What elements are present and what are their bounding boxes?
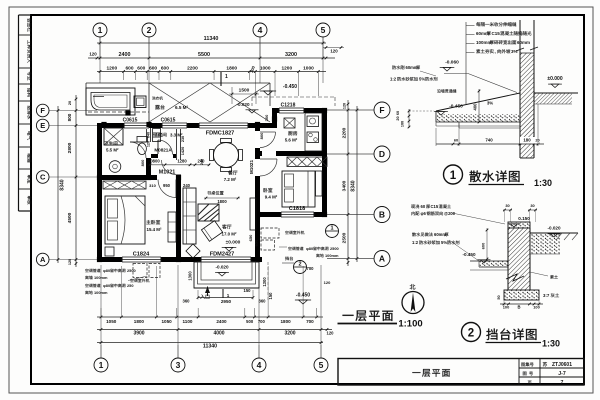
svg-text:1420: 1420 <box>181 147 185 155</box>
svg-text:C0615: C0615 <box>123 118 138 124</box>
svg-text:250: 250 <box>127 283 134 288</box>
svg-text:5500: 5500 <box>198 52 210 58</box>
svg-text:15.4 M²: 15.4 M² <box>147 227 162 232</box>
svg-text:1500: 1500 <box>239 88 250 94</box>
svg-text:1:2: 1:2 <box>390 77 397 82</box>
svg-text:4: 4 <box>258 25 263 35</box>
svg-text:F: F <box>379 105 384 115</box>
svg-text:600: 600 <box>161 66 169 72</box>
svg-text:600: 600 <box>481 243 486 250</box>
svg-text:9.4 M²: 9.4 M² <box>265 195 278 200</box>
svg-text:1280: 1280 <box>177 159 187 164</box>
svg-text:C15: C15 <box>492 31 501 36</box>
svg-text:1: 1 <box>330 226 333 232</box>
svg-text:950: 950 <box>163 183 171 188</box>
svg-text:M0821A: M0821A <box>154 148 172 153</box>
svg-text:230: 230 <box>181 136 185 142</box>
svg-text:3: 3 <box>176 360 181 370</box>
svg-text:20: 20 <box>396 116 400 120</box>
svg-text:120: 120 <box>327 331 335 336</box>
svg-text:5%: 5% <box>419 77 425 82</box>
svg-text:-0.020: -0.020 <box>236 102 249 107</box>
svg-text:FDMC1827: FDMC1827 <box>206 131 235 137</box>
svg-text:3%: 3% <box>487 101 493 106</box>
svg-text:±0.000: ±0.000 <box>226 240 241 246</box>
svg-text:1: 1 <box>99 360 104 370</box>
svg-text:5: 5 <box>319 360 324 370</box>
svg-text:7.2 M²: 7.2 M² <box>224 177 237 182</box>
svg-text:C: C <box>40 173 46 182</box>
svg-text:1100: 1100 <box>182 319 192 324</box>
svg-text:-0.060: -0.060 <box>445 60 459 66</box>
svg-text:3900: 3900 <box>133 331 144 337</box>
svg-text:120: 120 <box>343 103 347 109</box>
svg-text:150: 150 <box>268 292 273 300</box>
svg-text:5.6 M²: 5.6 M² <box>285 138 298 143</box>
svg-text:120: 120 <box>68 259 72 265</box>
svg-text:1:2: 1:2 <box>412 240 419 245</box>
svg-text:11340: 11340 <box>204 36 219 42</box>
svg-text:J-7: J-7 <box>558 371 566 377</box>
svg-text:800: 800 <box>259 132 264 139</box>
svg-text:4000: 4000 <box>213 331 224 337</box>
svg-text:B: B <box>517 305 520 310</box>
svg-text:1800: 1800 <box>134 319 145 324</box>
svg-text:700: 700 <box>306 319 314 324</box>
svg-text:1:30: 1:30 <box>542 339 560 349</box>
svg-text:30: 30 <box>505 203 509 208</box>
svg-text:20: 20 <box>535 138 539 143</box>
svg-text:1: 1 <box>98 25 103 35</box>
svg-text:1200: 1200 <box>281 66 292 72</box>
svg-text:-0.020: -0.020 <box>547 226 560 231</box>
svg-text:F: F <box>40 106 45 115</box>
svg-text:ZTJ0601: ZTJ0601 <box>552 362 572 368</box>
svg-text:8340: 8340 <box>60 179 66 190</box>
svg-text:100mm: 100mm <box>476 40 492 45</box>
svg-text:2800: 2800 <box>67 142 73 153</box>
svg-text:7: 7 <box>561 380 564 386</box>
svg-text:2400: 2400 <box>119 52 131 58</box>
svg-text:1: 1 <box>227 293 230 298</box>
svg-text:120: 120 <box>146 141 150 147</box>
svg-text:FDM2427: FDM2427 <box>210 252 235 258</box>
svg-text:0800: 0800 <box>150 159 160 164</box>
svg-text:310: 310 <box>149 183 156 188</box>
svg-text:600: 600 <box>125 66 133 72</box>
svg-text:3:7: 3:7 <box>543 293 550 298</box>
svg-text:φ80: φ80 <box>306 246 313 251</box>
svg-text:150: 150 <box>244 288 252 293</box>
svg-text:240: 240 <box>198 159 206 164</box>
svg-text:1800: 1800 <box>226 66 237 72</box>
svg-text:180: 180 <box>523 138 531 143</box>
svg-text:650: 650 <box>248 234 253 241</box>
svg-text:120: 120 <box>330 49 338 54</box>
svg-text:20: 20 <box>68 101 72 105</box>
svg-text:3200: 3200 <box>285 52 297 58</box>
svg-text:1200: 1200 <box>106 66 117 72</box>
svg-text:640: 640 <box>146 132 150 138</box>
svg-text:C1824: C1824 <box>133 252 150 258</box>
svg-text:1050: 1050 <box>161 319 172 324</box>
svg-text:1000: 1000 <box>303 66 314 72</box>
svg-text:A: A <box>40 255 46 264</box>
svg-text:2: 2 <box>468 328 474 340</box>
svg-text:60: 60 <box>454 138 458 143</box>
svg-text:,: , <box>495 49 496 54</box>
svg-text:-0.450: -0.450 <box>283 84 297 90</box>
svg-text:50: 50 <box>496 295 501 299</box>
svg-text:2: 2 <box>298 262 301 268</box>
svg-text:2400: 2400 <box>216 319 227 324</box>
svg-text:8340: 8340 <box>351 180 357 191</box>
svg-text:C1218: C1218 <box>281 103 296 109</box>
svg-text:1:30: 1:30 <box>534 178 552 188</box>
svg-text:17.0 M²: 17.0 M² <box>222 232 237 237</box>
svg-text:600: 600 <box>137 66 145 72</box>
svg-text:100mm: 100mm <box>94 275 108 280</box>
svg-text:C0615: C0615 <box>161 118 176 124</box>
svg-text:650: 650 <box>254 239 259 246</box>
svg-text:E: E <box>40 121 45 130</box>
svg-text:60mm: 60mm <box>406 65 418 70</box>
svg-text:3%: 3% <box>511 49 518 54</box>
svg-text:740: 740 <box>485 138 493 143</box>
svg-text:60mm: 60mm <box>434 232 446 237</box>
svg-text:11340: 11340 <box>203 344 217 350</box>
svg-text:400: 400 <box>473 103 478 111</box>
svg-text:4500: 4500 <box>67 212 73 223</box>
svg-text:2200: 2200 <box>342 127 348 138</box>
svg-text:2200: 2200 <box>187 66 198 72</box>
svg-text:A: A <box>379 254 385 264</box>
svg-text:-0.450: -0.450 <box>449 104 463 110</box>
svg-text:φ6: φ6 <box>421 211 427 216</box>
svg-text:5: 5 <box>321 25 326 35</box>
svg-text:300: 300 <box>264 114 269 121</box>
svg-text:5%: 5% <box>441 240 447 245</box>
svg-text:6.5 M²: 6.5 M² <box>175 105 188 110</box>
svg-text:100mm: 100mm <box>94 290 108 295</box>
svg-text:0.150: 0.150 <box>518 216 530 221</box>
svg-text:1300: 1300 <box>188 271 193 281</box>
svg-text:5.5 M²: 5.5 M² <box>106 148 119 153</box>
svg-text:3200: 3200 <box>284 331 295 337</box>
svg-text:-0.450: -0.450 <box>296 293 310 299</box>
svg-text:800: 800 <box>140 159 145 166</box>
svg-text:1: 1 <box>225 74 228 80</box>
svg-text:800: 800 <box>67 113 72 121</box>
svg-text:360: 360 <box>183 299 191 304</box>
svg-text:60: 60 <box>396 111 400 115</box>
svg-text:1800: 1800 <box>217 199 227 204</box>
svg-text:30: 30 <box>530 203 534 208</box>
svg-text:-0.020: -0.020 <box>215 265 228 270</box>
svg-text:-0.450: -0.450 <box>462 252 475 257</box>
svg-text:2500: 2500 <box>330 246 339 251</box>
svg-text:600: 600 <box>149 66 157 72</box>
svg-text:φ80: φ80 <box>103 268 110 273</box>
svg-text:2500: 2500 <box>342 232 348 243</box>
svg-text:1000: 1000 <box>260 66 271 72</box>
svg-text:1300: 1300 <box>262 277 267 287</box>
svg-text:4: 4 <box>257 360 262 370</box>
svg-text:100: 100 <box>503 305 510 310</box>
svg-text:1800: 1800 <box>280 319 291 324</box>
svg-text:100: 100 <box>401 121 405 127</box>
svg-text:500: 500 <box>246 319 254 324</box>
svg-text:360: 360 <box>259 299 267 304</box>
svg-text:C15: C15 <box>431 204 439 209</box>
svg-text:1: 1 <box>450 170 457 182</box>
svg-text:D: D <box>379 149 385 159</box>
svg-text:φ80: φ80 <box>103 283 110 288</box>
svg-text:±0.000: ±0.000 <box>547 76 562 82</box>
svg-text:120: 120 <box>89 52 97 57</box>
svg-text:700: 700 <box>307 266 315 271</box>
svg-text:120: 120 <box>324 280 331 285</box>
svg-text:60mm: 60mm <box>517 40 530 45</box>
svg-text:B: B <box>379 210 385 220</box>
svg-text:2: 2 <box>147 25 152 35</box>
svg-text:100: 100 <box>533 305 540 310</box>
svg-text:60: 60 <box>421 204 426 209</box>
svg-text:240: 240 <box>183 183 191 188</box>
svg-text:2950: 2950 <box>221 299 232 304</box>
svg-text:3400: 3400 <box>342 180 348 191</box>
svg-text:M1021: M1021 <box>159 170 175 176</box>
svg-text:1050: 1050 <box>106 319 117 324</box>
svg-text:M1021: M1021 <box>249 160 254 174</box>
svg-text:2500: 2500 <box>127 268 136 273</box>
svg-text:100mm: 100mm <box>325 253 339 258</box>
svg-text:1:100: 1:100 <box>398 319 422 330</box>
